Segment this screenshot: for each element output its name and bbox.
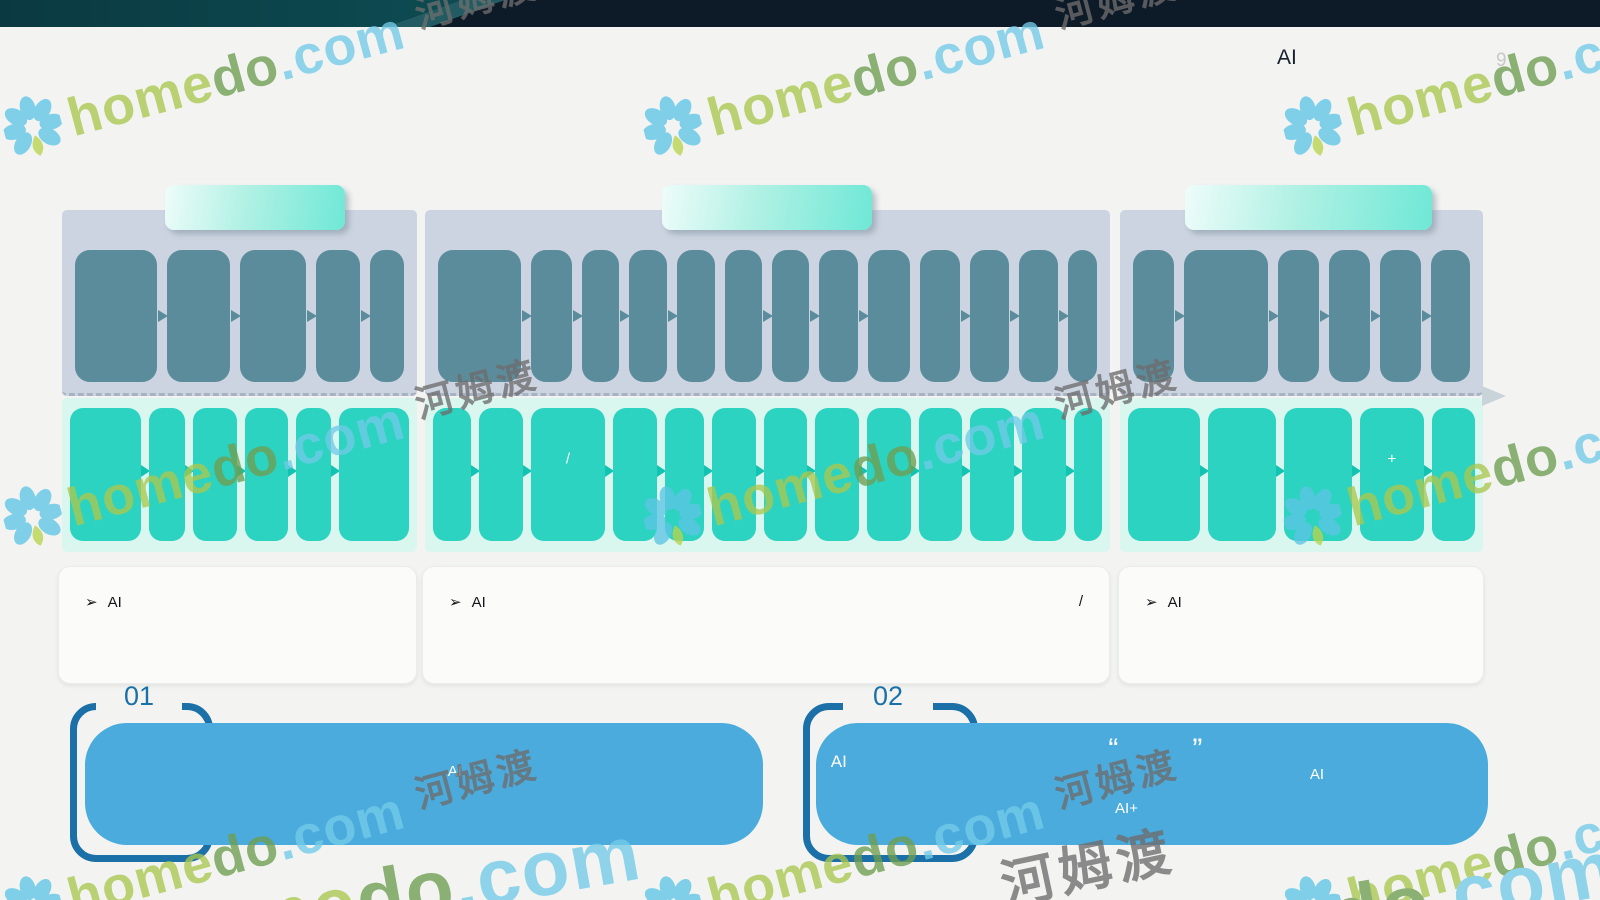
flow-box (245, 408, 288, 541)
flow-box (815, 408, 859, 541)
watermark-text: me (235, 858, 365, 900)
flow-box (149, 408, 185, 541)
watermark-text: do (1484, 423, 1566, 500)
flow-box (296, 408, 331, 541)
flow-box (1068, 250, 1097, 382)
flow-box (479, 408, 523, 541)
flow-box (677, 250, 714, 382)
arrow-bullet-icon: ➢ (449, 594, 462, 611)
watermark-text: do (349, 841, 462, 900)
flow-box (1022, 408, 1066, 541)
page-number: 9 (1496, 50, 1507, 72)
flow-box (613, 408, 657, 541)
process-panel-bottom: / (425, 398, 1110, 552)
flow-box (1431, 250, 1470, 382)
dark-flow-row (1133, 250, 1470, 382)
flow-box (167, 250, 230, 382)
watermark-text: .com (1550, 780, 1600, 874)
flow-box (970, 250, 1009, 382)
flow-box (1380, 250, 1421, 382)
dark-flow-row (438, 250, 1097, 382)
flow-box (339, 408, 409, 541)
flow-box (193, 408, 237, 541)
flow-section-middle: / (425, 0, 1110, 560)
step-number-02: 02 (843, 681, 933, 712)
homedo-flower-logo (0, 868, 70, 900)
flow-box (1432, 408, 1475, 541)
flow-box (970, 408, 1014, 541)
note-text: AI (1168, 594, 1182, 611)
flow-box-label: + (1388, 450, 1397, 467)
process-panel-top (62, 210, 417, 396)
flow-box: / (531, 408, 605, 541)
teal-flow-row: + (1128, 408, 1475, 541)
flow-box (1329, 250, 1370, 382)
process-panel-bottom: + (1120, 398, 1483, 552)
flow-box (1074, 408, 1102, 541)
process-panel-top (425, 210, 1110, 396)
top-accent-bar (0, 0, 1600, 27)
flow-box (1278, 250, 1319, 382)
top-accent-teal-gradient (0, 0, 1600, 27)
flow-box (920, 250, 960, 382)
flow-box (1128, 408, 1200, 541)
flow-box (1184, 250, 1268, 382)
flow-box (1208, 408, 1276, 541)
flow-section-left (62, 0, 417, 560)
bar-text: AI (1310, 766, 1324, 783)
flow-box (712, 408, 756, 541)
watermark-text: .com (1550, 390, 1600, 484)
continue-arrow-icon (1482, 386, 1506, 406)
flow-box: + (1360, 408, 1424, 541)
flow-box (433, 408, 471, 541)
flow-box (438, 250, 521, 382)
arrow-bullet-icon: ➢ (85, 594, 98, 611)
flow-section-right: + (1120, 0, 1483, 560)
presentation-slide: AI 9 / + ➢AI ➢AI / (0, 0, 1600, 900)
flow-box (725, 250, 762, 382)
flow-box (868, 250, 910, 382)
step-bar-02: AI“”AIAI+ (816, 723, 1488, 845)
flow-box (1133, 250, 1174, 382)
flow-box (665, 408, 704, 541)
flow-box (1019, 250, 1057, 382)
teal-flow-row: / (433, 408, 1102, 541)
bar-text: ” (1192, 733, 1202, 767)
note-box-right: ➢AI (1118, 566, 1484, 684)
flow-box (531, 250, 571, 382)
flow-box (1284, 408, 1352, 541)
slide-title-fragment: AI (1277, 46, 1297, 70)
flow-box (819, 250, 857, 382)
note-trailing-text: / (1079, 593, 1083, 610)
note-text: AI (472, 594, 486, 611)
bar-text: AI (831, 752, 847, 772)
step-bar-01: AI (85, 723, 763, 845)
flow-box (75, 250, 157, 382)
section-header-pill (165, 185, 345, 230)
process-panel-top (1120, 210, 1483, 396)
flow-box (316, 250, 360, 382)
dark-flow-row (75, 250, 404, 382)
process-panel-bottom (62, 398, 417, 552)
arrow-bullet-icon: ➢ (1145, 594, 1158, 611)
note-box-middle: ➢AI / (422, 566, 1110, 684)
flow-box (70, 408, 141, 541)
flow-box (240, 250, 306, 382)
step-number-01: 01 (96, 681, 182, 712)
flow-box-label: / (566, 450, 570, 467)
flow-box (764, 408, 808, 541)
section-header-pill (1185, 185, 1432, 230)
watermark-text: do (1325, 856, 1438, 900)
section-header-pill (662, 185, 872, 230)
note-box-left: ➢AI (58, 566, 417, 684)
homedo-flower-logo (0, 478, 70, 559)
homedo-flower-logo (636, 868, 710, 900)
note-text: AI (108, 594, 122, 611)
watermark-text: do (1484, 33, 1566, 110)
bar-text: “ (1108, 733, 1118, 767)
flow-box (629, 250, 667, 382)
homedo-flower-logo (1276, 868, 1350, 900)
watermark-text: do (1484, 813, 1566, 890)
bar-text: AI+ (1115, 800, 1138, 817)
flow-box (919, 408, 963, 541)
teal-flow-row (70, 408, 409, 541)
flow-box (772, 250, 809, 382)
flow-box (867, 408, 911, 541)
bar-text: AI (448, 763, 462, 780)
flow-box (370, 250, 404, 382)
flow-box (582, 250, 619, 382)
homedo-flower-logo (0, 88, 70, 169)
